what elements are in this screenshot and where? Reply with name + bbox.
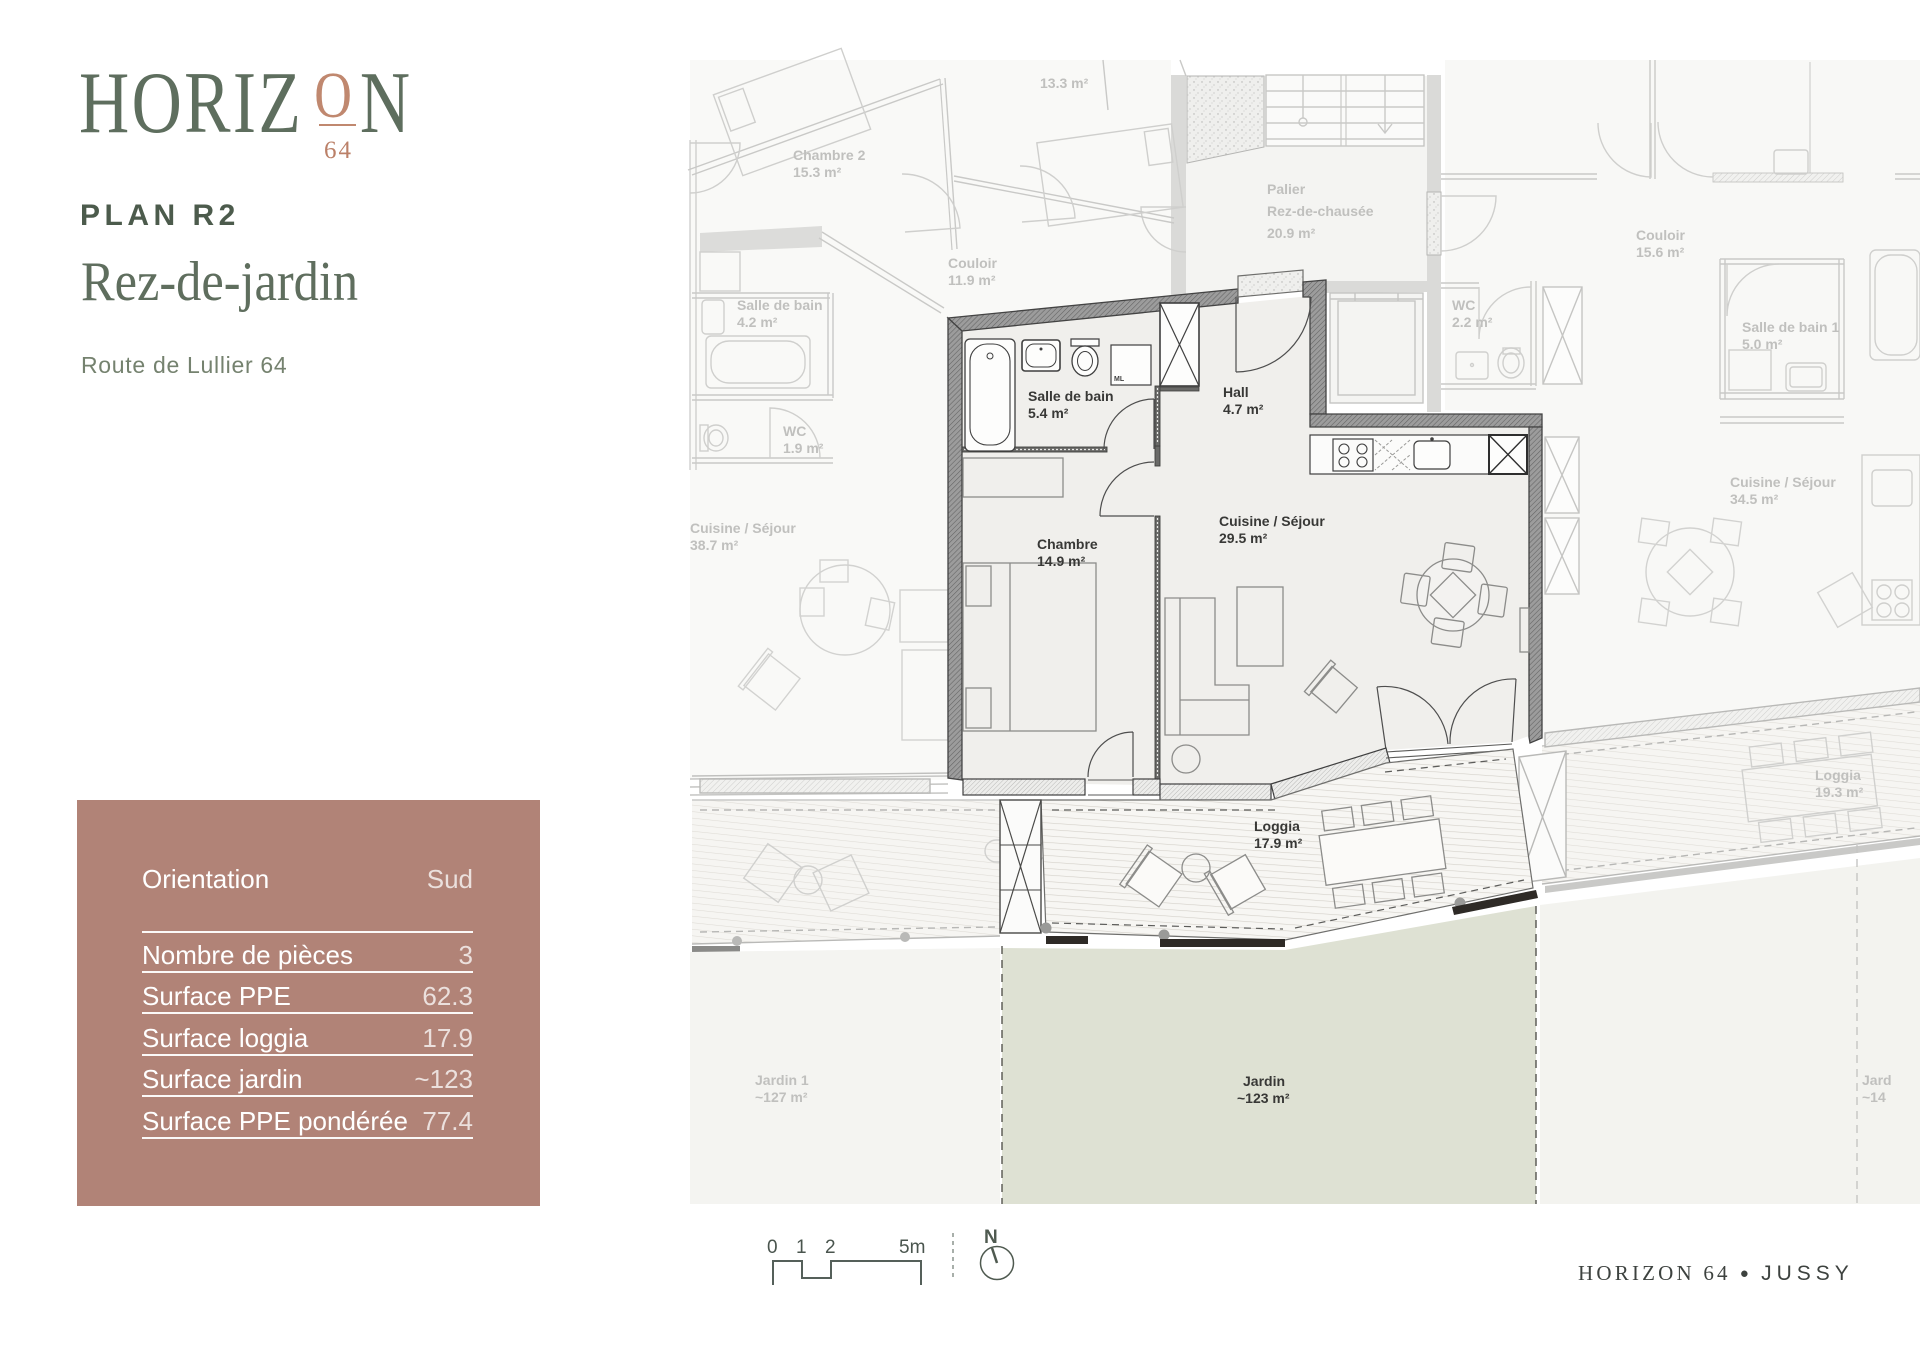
svg-text:~123 m²: ~123 m² — [1237, 1090, 1290, 1106]
svg-text:13.3 m²: 13.3 m² — [1040, 75, 1089, 91]
svg-text:5m: 5m — [899, 1237, 925, 1258]
svg-text:14.9 m²: 14.9 m² — [1037, 553, 1086, 569]
svg-text:Salle de bain: Salle de bain — [737, 297, 823, 313]
svg-text:N: N — [984, 1227, 998, 1248]
svg-text:29.5 m²: 29.5 m² — [1219, 530, 1268, 546]
svg-text:Loggia: Loggia — [1815, 767, 1861, 783]
svg-text:1.9 m²: 1.9 m² — [783, 440, 824, 456]
svg-text:WC: WC — [783, 423, 806, 439]
svg-text:Salle de bain: Salle de bain — [1028, 388, 1114, 404]
svg-text:Couloir: Couloir — [1636, 227, 1686, 243]
svg-text:Salle de bain 1: Salle de bain 1 — [1742, 319, 1839, 335]
svg-text:5.4 m²: 5.4 m² — [1028, 405, 1069, 421]
svg-text:Rez-de-chausée: Rez-de-chausée — [1267, 203, 1374, 219]
svg-text:34.5 m²: 34.5 m² — [1730, 491, 1779, 507]
svg-text:Hall: Hall — [1223, 384, 1249, 400]
svg-text:Chambre 2: Chambre 2 — [793, 147, 866, 163]
svg-text:1: 1 — [796, 1237, 807, 1258]
svg-text:~127 m²: ~127 m² — [755, 1089, 808, 1105]
svg-text:Cuisine / Séjour: Cuisine / Séjour — [690, 520, 796, 536]
svg-text:0: 0 — [767, 1237, 778, 1258]
svg-text:2: 2 — [825, 1237, 836, 1258]
svg-text:2.2 m²: 2.2 m² — [1452, 314, 1493, 330]
svg-text:19.3 m²: 19.3 m² — [1815, 784, 1864, 800]
svg-text:Palier: Palier — [1267, 181, 1306, 197]
svg-text:Chambre: Chambre — [1037, 536, 1098, 552]
svg-text:Jard: Jard — [1862, 1072, 1892, 1088]
svg-text:11.9 m²: 11.9 m² — [948, 272, 996, 288]
svg-text:ML: ML — [1114, 376, 1125, 383]
svg-text:15.3 m²: 15.3 m² — [793, 164, 842, 180]
svg-text:Jardin 1: Jardin 1 — [755, 1072, 809, 1088]
svg-text:4.7 m²: 4.7 m² — [1223, 401, 1264, 417]
svg-text:38.7 m²: 38.7 m² — [690, 537, 739, 553]
svg-text:Cuisine / Séjour: Cuisine / Séjour — [1730, 474, 1836, 490]
svg-text:Cuisine / Séjour: Cuisine / Séjour — [1219, 513, 1325, 529]
svg-text:5.0 m²: 5.0 m² — [1742, 336, 1783, 352]
svg-text:Couloir: Couloir — [948, 255, 998, 271]
svg-text:15.6 m²: 15.6 m² — [1636, 244, 1685, 260]
svg-text:Loggia: Loggia — [1254, 818, 1300, 834]
svg-text:~14: ~14 — [1862, 1089, 1886, 1105]
svg-text:17.9 m²: 17.9 m² — [1254, 835, 1303, 851]
svg-text:20.9 m²: 20.9 m² — [1267, 225, 1316, 241]
svg-text:Jardin: Jardin — [1243, 1073, 1285, 1089]
svg-text:4.2 m²: 4.2 m² — [737, 314, 778, 330]
svg-text:WC: WC — [1452, 297, 1475, 313]
